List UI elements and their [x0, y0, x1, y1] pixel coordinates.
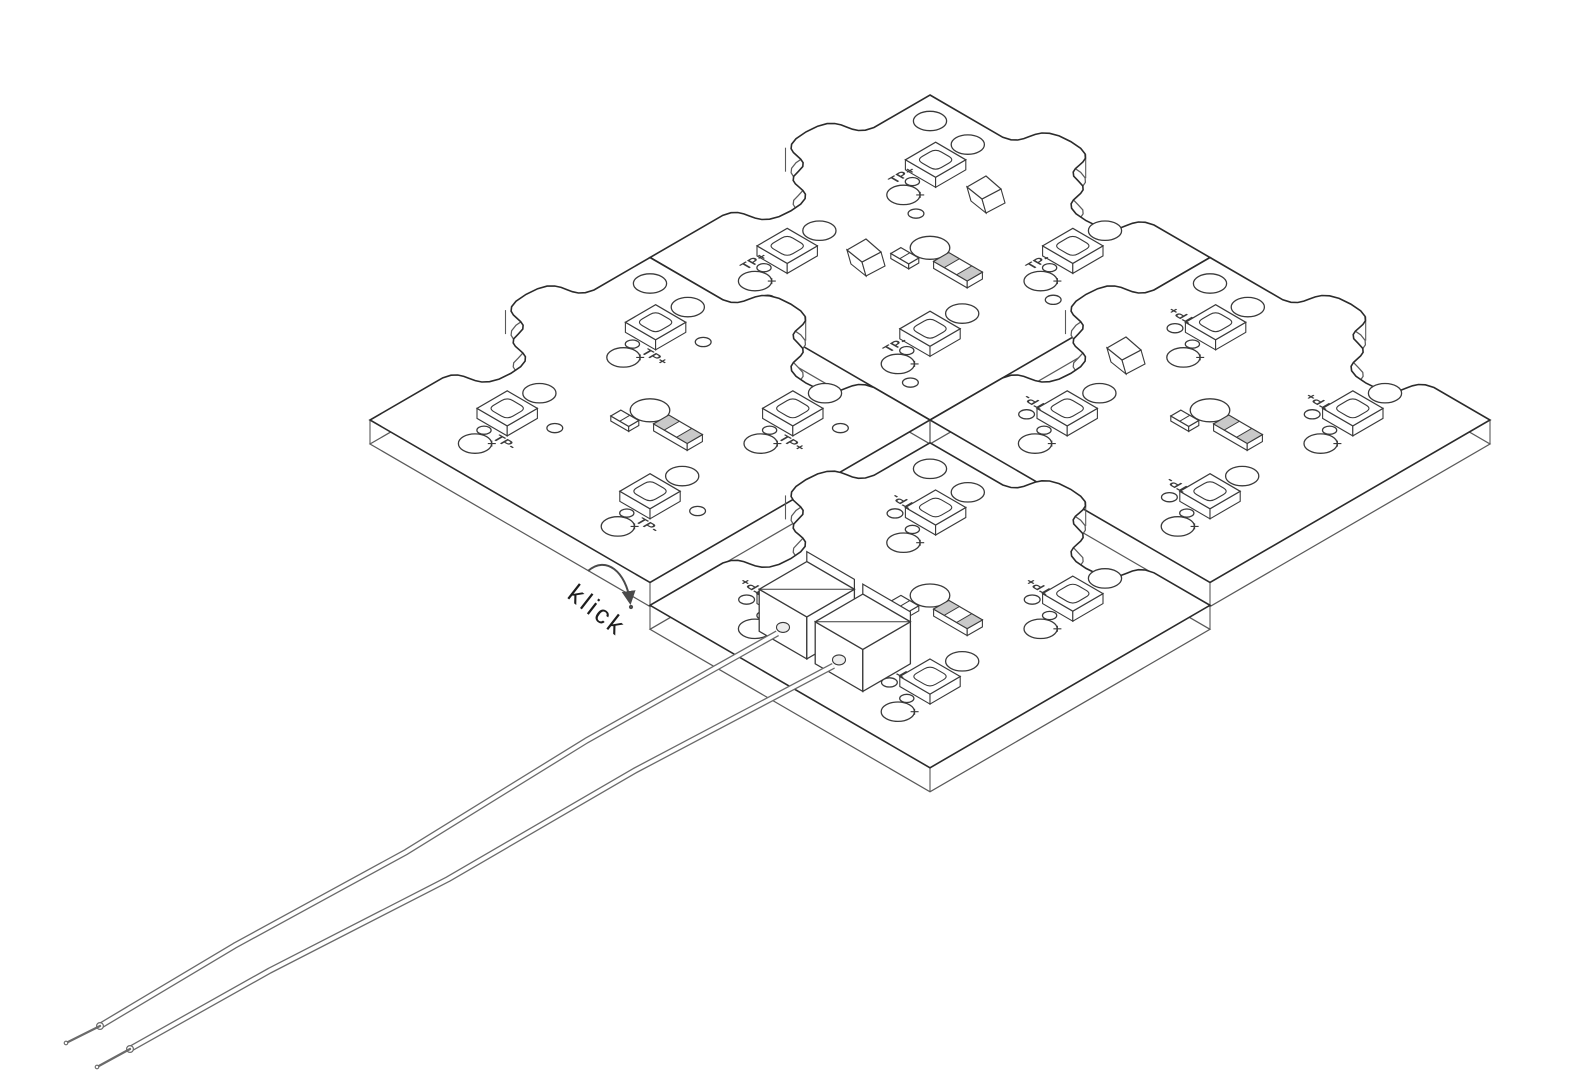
generated-drawing: TP+TP-TP+TP-TP+TP+TP-TP-TP+TP+TP-TP-TP-T… — [64, 95, 1490, 1069]
test-pad — [833, 424, 849, 433]
mounting-hole — [601, 517, 634, 536]
mounting-hole — [1088, 221, 1121, 240]
wire-entry-slot — [833, 655, 846, 665]
mounting-hole — [808, 384, 841, 403]
test-pad — [908, 209, 924, 218]
mounting-hole — [1304, 434, 1337, 453]
lead-tip — [95, 1065, 99, 1069]
mounting-hole — [1083, 384, 1116, 403]
test-pad — [1323, 426, 1337, 434]
bare-lead — [97, 1049, 130, 1067]
mounting-hole — [666, 466, 699, 485]
test-pad — [1180, 509, 1194, 517]
wire — [95, 666, 833, 1069]
test-pad — [690, 506, 706, 515]
test-pad — [1167, 324, 1183, 333]
mounting-hole — [523, 384, 556, 403]
mounting-hole — [887, 185, 920, 204]
test-pad — [620, 509, 634, 517]
test-pad — [1019, 410, 1035, 419]
mounting-hole — [1226, 466, 1259, 485]
mounting-hole — [881, 354, 914, 373]
lead-tip — [64, 1041, 68, 1045]
drawing-canvas: TP+TP-TP+TP-TP+TP+TP-TP-TP+TP+TP-TP-TP-T… — [0, 0, 1574, 1082]
test-pad — [1037, 426, 1051, 434]
bare-lead — [66, 1026, 100, 1043]
mounting-hole — [1231, 297, 1264, 316]
mounting-hole — [1161, 517, 1194, 536]
test-pad — [905, 525, 919, 533]
wire — [64, 633, 777, 1044]
mounting-hole — [607, 348, 640, 367]
mounting-hole — [633, 274, 666, 293]
mounting-hole — [1167, 348, 1200, 367]
mounting-hole — [738, 271, 771, 290]
test-pad — [1043, 611, 1057, 619]
test-pad — [625, 340, 639, 348]
mounting-hole — [913, 459, 946, 478]
test-pad — [903, 378, 919, 387]
test-pad — [1024, 595, 1040, 604]
mounting-hole — [1018, 434, 1051, 453]
test-pad — [1162, 493, 1178, 502]
klick-arrow-dot — [629, 605, 633, 609]
mounting-hole — [671, 297, 704, 316]
wire-core — [100, 633, 777, 1026]
mounting-hole — [881, 702, 914, 721]
mounting-hole — [1024, 619, 1057, 638]
mounting-hole — [458, 434, 491, 453]
mounting-hole — [946, 652, 979, 671]
mounting-hole — [1193, 274, 1226, 293]
test-pad — [887, 509, 903, 518]
test-pad — [1304, 410, 1320, 419]
test-pad — [763, 426, 777, 434]
mounting-hole — [744, 434, 777, 453]
isometric-line-drawing: TP+TP-TP+TP-TP+TP+TP-TP-TP+TP+TP-TP-TP-T… — [0, 0, 1574, 1082]
test-pad — [739, 595, 755, 604]
test-pad — [1045, 295, 1061, 304]
wire-entry-slot — [777, 622, 790, 632]
mounting-hole — [1088, 569, 1121, 588]
mounting-hole — [1024, 271, 1057, 290]
test-pad — [477, 426, 491, 434]
mounting-hole — [913, 111, 946, 130]
mounting-hole — [887, 533, 920, 552]
mounting-hole — [803, 221, 836, 240]
mounting-hole — [1368, 384, 1401, 403]
mounting-hole — [951, 483, 984, 502]
test-pad — [547, 424, 563, 433]
test-pad — [900, 694, 914, 702]
mounting-hole — [951, 135, 984, 154]
test-pad — [1185, 340, 1199, 348]
test-pad — [695, 337, 711, 346]
mounting-hole — [946, 304, 979, 323]
